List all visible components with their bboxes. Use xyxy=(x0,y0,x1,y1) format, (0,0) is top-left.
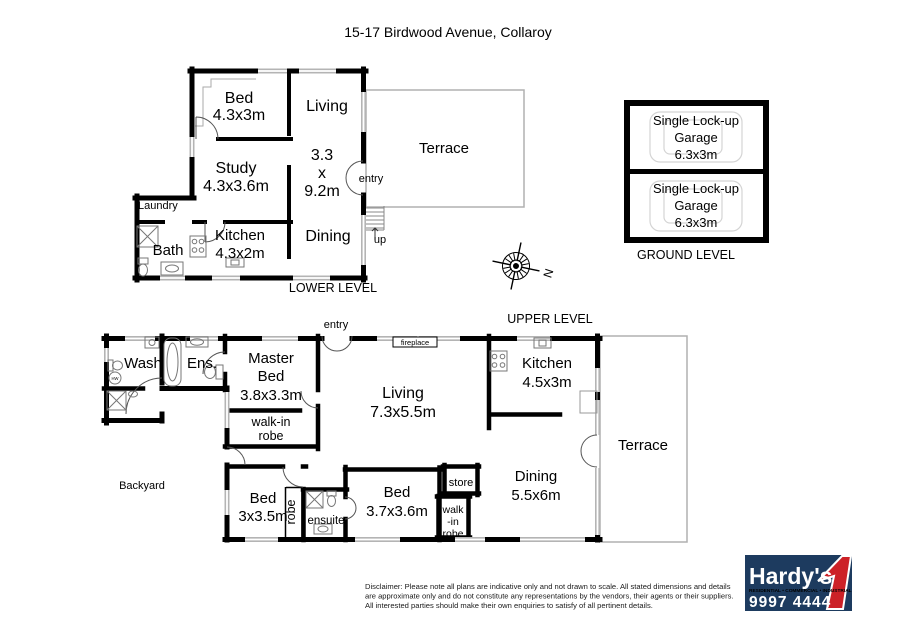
page-title: 15-17 Birdwood Avenue, Collaroy xyxy=(344,24,552,40)
lower-kitchen-label: Kitchen xyxy=(215,227,265,244)
study-dims: 4.3x3.6m xyxy=(203,178,269,195)
walkin-robe2-label2: -in xyxy=(447,516,459,528)
fireplace-label: fireplace xyxy=(401,338,429,347)
lower-living-dim1: 3.3 xyxy=(311,147,333,164)
master-bed-label2: Bed xyxy=(258,368,285,385)
lower-level-caption: LOWER LEVEL xyxy=(289,281,377,295)
upper-kitchen-label: Kitchen xyxy=(522,355,572,372)
bed2-dims: 3x3.5m xyxy=(238,508,287,525)
ensuite-label: ensuite xyxy=(307,515,344,527)
walkin-robe1-label1: walk-in xyxy=(251,415,291,429)
wash-label: Wash xyxy=(124,355,162,372)
floorplan-page: 15-17 Birdwood Avenue, Collaroy xyxy=(0,0,900,636)
upper-kitchen-dims: 4.5x3m xyxy=(522,374,571,391)
disclaimer-text: Disclaimer: Please note all plans are in… xyxy=(365,582,734,610)
sink-icon xyxy=(161,262,183,275)
master-bed-label1: Master xyxy=(248,350,294,367)
upper-level-caption: UPPER LEVEL xyxy=(507,312,593,326)
logo-phone-number: 9997 4444 xyxy=(749,594,831,611)
ground-level-plan: Single Lock-up Garage 6.3x3m Single Lock… xyxy=(627,103,766,262)
agency-logo: Hardy's RESIDENTIAL • COMMERCIAL • INDUS… xyxy=(745,555,852,611)
lower-living-label: Living xyxy=(306,98,348,115)
ground-level-caption: GROUND LEVEL xyxy=(637,248,735,262)
wash-shower-icon xyxy=(107,391,138,410)
upper-stove-icon xyxy=(490,351,507,371)
upper-interior-walls xyxy=(104,336,560,540)
upper-terrace-label: Terrace xyxy=(618,437,668,454)
bathtub-icon xyxy=(164,338,181,386)
compass-rose: N xyxy=(488,238,561,298)
upper-dining-label: Dining xyxy=(515,468,558,485)
lower-dining-label: Dining xyxy=(305,228,350,245)
garage2-line1: Single Lock-up xyxy=(653,181,739,196)
garage2-line2: Garage xyxy=(674,198,717,213)
backyard-label: Backyard xyxy=(119,480,165,492)
master-bed-dims: 3.8x3.3m xyxy=(240,387,302,404)
kitchen-bench-icon xyxy=(580,391,597,413)
bed2-label: Bed xyxy=(250,490,277,507)
garage1-line1: Single Lock-up xyxy=(653,113,739,128)
ensuite-shower-icon xyxy=(306,491,323,508)
floorplan-drawing: 15-17 Birdwood Avenue, Collaroy xyxy=(0,0,900,636)
bed3-dims: 3.7x3.6m xyxy=(366,503,428,520)
ensuite-toilet-icon xyxy=(327,491,336,507)
garage2-dims: 6.3x3m xyxy=(675,215,718,230)
upper-dining-dims: 5.5x6m xyxy=(511,487,560,504)
lower-entry-label: entry xyxy=(359,173,384,185)
study-label: Study xyxy=(216,160,257,177)
ens-label: Ens. xyxy=(187,355,217,372)
lower-bed-dims: 4.3x3m xyxy=(213,107,265,124)
lower-living-dim3: 9.2m xyxy=(304,183,340,200)
compass-center-dot xyxy=(512,262,519,269)
disclaimer-line3: All interested parties should make their… xyxy=(365,601,653,610)
disclaimer-line2: are approximate only and do not constitu… xyxy=(365,592,734,601)
garage1-dims: 6.3x3m xyxy=(675,147,718,162)
stove-icon xyxy=(190,236,206,257)
lower-bed-label: Bed xyxy=(225,90,253,107)
compass-north-label: N xyxy=(540,267,556,280)
upper-level-plan: fireplace HW xyxy=(104,312,687,542)
logo-brand-text: Hardy's xyxy=(749,563,832,589)
lower-kitchen-dims: 4.3x2m xyxy=(215,245,264,262)
bed3-label: Bed xyxy=(384,484,411,501)
garage1-line2: Garage xyxy=(674,130,717,145)
walkin-robe2-label1: walk xyxy=(441,504,464,516)
lower-terrace-label: Terrace xyxy=(419,140,469,157)
up-label: up xyxy=(374,234,386,246)
upper-living-dims: 7.3x5.5m xyxy=(370,404,436,421)
lower-living-dim2: x xyxy=(318,165,326,182)
upper-living-label: Living xyxy=(382,385,424,402)
upper-entry-label: entry xyxy=(324,319,349,331)
store-label: store xyxy=(449,477,473,489)
walkin-robe2-label3: robe xyxy=(442,528,463,540)
laundry-label: Laundry xyxy=(138,200,178,212)
walkin-robe1-label2: robe xyxy=(258,429,283,443)
wash-toilet-icon xyxy=(108,360,123,371)
hot-water-label: HW xyxy=(112,376,119,381)
bath-label: Bath xyxy=(153,242,184,259)
disclaimer-line1: Disclaimer: Please note all plans are in… xyxy=(365,582,731,591)
robe-label: robe xyxy=(284,499,298,524)
